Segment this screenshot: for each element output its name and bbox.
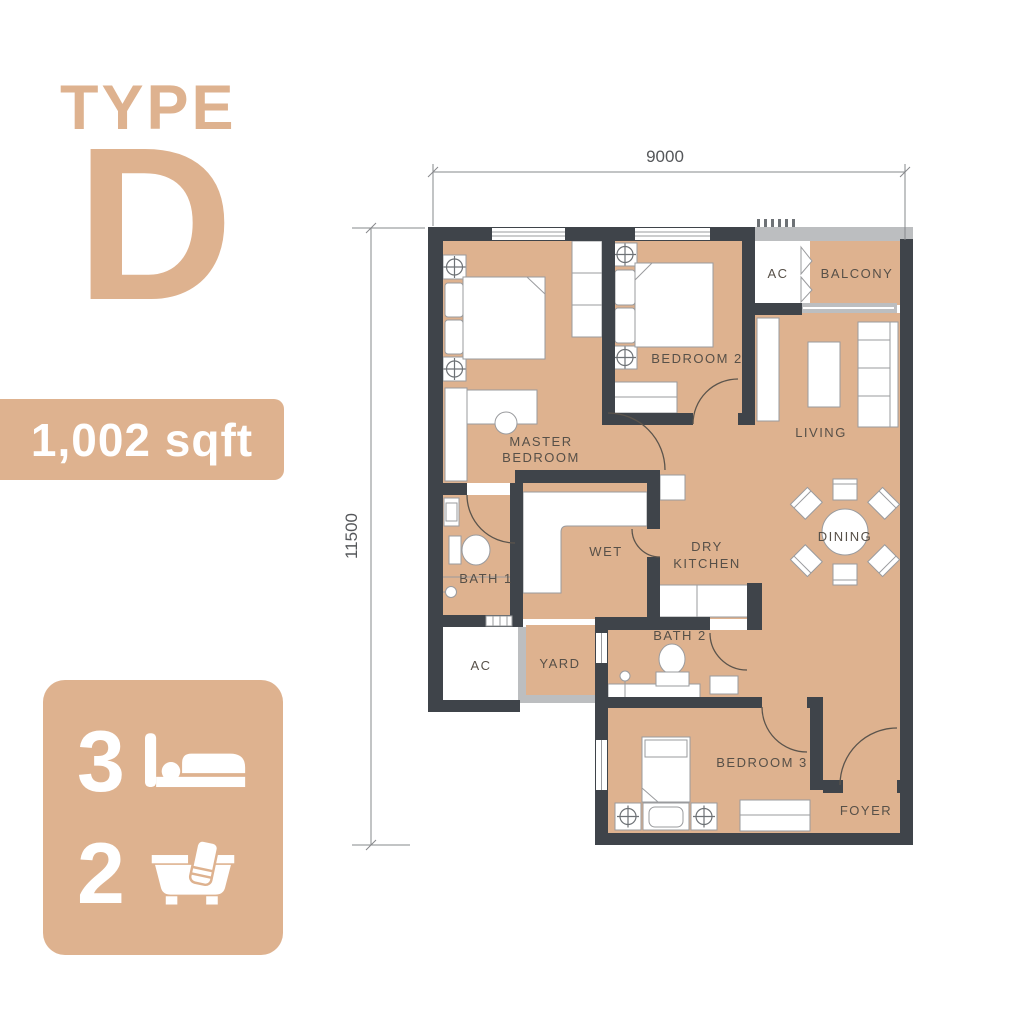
bath1-toilet-bowl <box>462 535 490 565</box>
dining-chair-n <box>833 479 857 500</box>
wall-wet-left <box>510 483 523 627</box>
wall-bottom <box>595 833 913 845</box>
wall-ac-bottom <box>742 303 802 315</box>
louver-ticks <box>757 219 795 227</box>
room-label-dry-1: DRY <box>691 539 723 554</box>
bedroom-count: 3 <box>77 719 125 805</box>
wall-wet-dry-1 <box>647 483 660 529</box>
room-label-bath2: BATH 2 <box>653 628 707 643</box>
room-label-ac-top: AC <box>767 266 788 281</box>
window-louver-ac <box>486 616 512 626</box>
dining-chair-s <box>833 564 857 585</box>
room-label-foyer: FOYER <box>840 803 892 818</box>
dim-width-label: 9000 <box>646 147 684 166</box>
wall-bed2-living <box>742 241 755 425</box>
room-label-master-2: BEDROOM <box>502 450 580 465</box>
bathroom-count: 2 <box>77 831 125 917</box>
area-text: 1,002 sqft <box>31 413 253 467</box>
room-label-master-1: MASTER <box>509 434 572 449</box>
master-pillow-1 <box>445 283 463 317</box>
wall-right <box>900 239 913 845</box>
room-label-ac-bottom: AC <box>470 658 491 673</box>
bath1-toilet-tank <box>449 536 461 564</box>
floorplan-page: TYPE D 1,002 sqft 3 2 <box>0 0 1024 1024</box>
wall-kitchen-top <box>515 470 660 483</box>
floor-plan-svg: MASTER BEDROOM BEDROOM 2 BEDROOM 3 LIVIN… <box>330 140 930 860</box>
master-wardrobe <box>572 241 602 337</box>
type-letter: D <box>76 116 233 334</box>
bed-icon <box>145 729 247 795</box>
wall-master-bed2 <box>602 241 615 413</box>
bath1-shower <box>446 587 457 598</box>
bed-bath-card: 3 2 <box>43 680 283 955</box>
wall-left <box>428 227 443 712</box>
yard-left-strip <box>518 627 526 703</box>
room-label-dry-2: KITCHEN <box>673 556 741 571</box>
room-label-living: LIVING <box>795 425 847 440</box>
master-pillow-2 <box>445 320 463 354</box>
dry-kitchen-fridge <box>660 475 685 500</box>
wall-wet-dry-2 <box>647 557 660 619</box>
window-bedroom2-top <box>635 228 710 240</box>
wall-bed2-bottom <box>602 413 693 425</box>
wall-master-bottom <box>428 483 467 495</box>
room-label-balcony: BALCONY <box>821 266 894 281</box>
bedroom-row: 3 <box>43 719 283 805</box>
wall-foyer-stub-right <box>897 780 913 793</box>
master-cabinet <box>445 388 467 481</box>
wall-bed3-right <box>810 697 823 790</box>
bath2-shower <box>620 671 630 681</box>
bath2-toilet-bowl <box>659 644 685 674</box>
room-label-bedroom3: BEDROOM 3 <box>716 755 808 770</box>
room-label-bedroom2: BEDROOM 2 <box>651 351 743 366</box>
bedroom3-pillow <box>645 740 687 757</box>
room-label-dining: DINING <box>818 529 873 544</box>
room-label-wet: WET <box>589 544 622 559</box>
living-coffee-table <box>808 342 840 407</box>
dry-kitchen-counter <box>655 585 755 617</box>
wall-top-light <box>752 227 913 241</box>
wall-kitchen-stub <box>747 583 762 630</box>
bedroom2-bed <box>635 263 713 347</box>
bathtub-icon <box>145 841 241 907</box>
bedroom2-pillow-2 <box>615 308 635 343</box>
floor-plan: MASTER BEDROOM BEDROOM 2 BEDROOM 3 LIVIN… <box>330 140 930 860</box>
area-badge: 1,002 sqft <box>0 399 284 480</box>
yard-bottom-strip <box>518 695 595 703</box>
living-console <box>757 318 779 421</box>
window-bath2-left <box>596 633 607 663</box>
room-label-yard: YARD <box>539 656 580 671</box>
window-bedroom3-left <box>596 740 607 790</box>
bath2-toilet-tank <box>656 672 689 686</box>
wall-ac2-bottom <box>428 700 520 712</box>
dim-height-label: 11500 <box>342 513 361 559</box>
wall-bed3-top <box>595 697 762 708</box>
room-label-bath1: BATH 1 <box>459 571 513 586</box>
master-mirror <box>495 412 517 434</box>
master-bed <box>463 277 545 359</box>
bedroom2-pillow-1 <box>615 270 635 305</box>
window-master-top <box>492 228 565 240</box>
bathroom-row: 2 <box>43 831 283 917</box>
living-sofa <box>858 322 898 427</box>
bath2-cabinet <box>710 676 738 694</box>
